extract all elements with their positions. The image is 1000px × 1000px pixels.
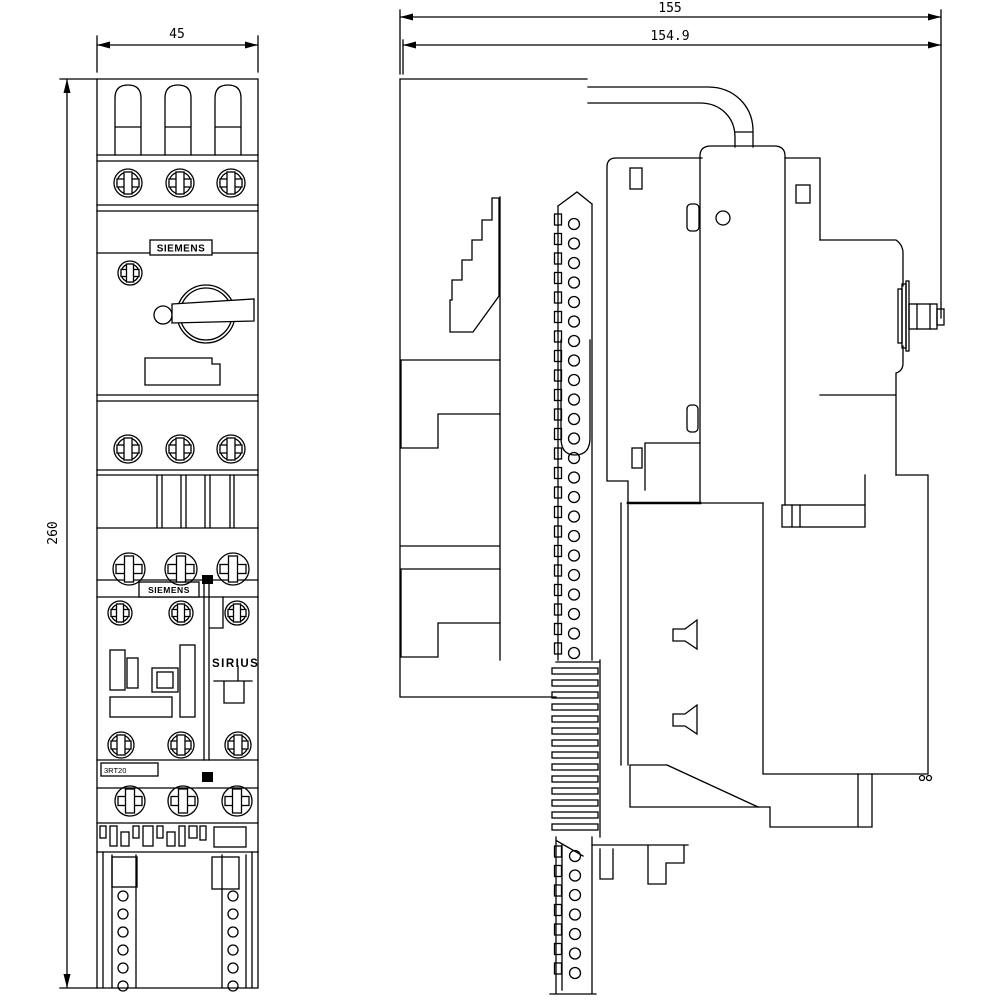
dim-side-depth-device: 154.9	[403, 29, 941, 74]
wiring-duct-tube	[588, 87, 753, 147]
terminal-comb-band	[100, 826, 246, 847]
din-hook-right	[212, 857, 239, 889]
screw-icon	[114, 435, 142, 463]
screw-icon	[225, 601, 249, 625]
siemens-label-contactor: SIEMENS	[148, 585, 190, 595]
dim-side-depth-total: 155	[400, 1, 941, 318]
din-hook-left	[112, 857, 137, 887]
model-label-3rt20: 3RT20	[104, 766, 126, 775]
screw-icon	[108, 732, 134, 758]
screw-icon	[168, 732, 194, 758]
rating-window	[145, 358, 220, 385]
dim-overall-height: 260	[46, 79, 97, 988]
dim-260-value: 260	[46, 521, 61, 544]
dim-154-9-value: 154.9	[650, 29, 689, 44]
screw-icon	[108, 601, 132, 625]
dim-155-value: 155	[658, 1, 681, 16]
comb-fins	[552, 668, 598, 830]
front-view-drawing: SIEMENS SIEMENS SIRIUS	[97, 79, 259, 991]
body-block-breaker	[628, 146, 820, 505]
perforated-strip	[550, 192, 600, 994]
body-block-lower	[621, 475, 932, 827]
drawing-canvas: 45 260 155 154.9 SIEMENS	[0, 0, 1000, 1000]
screw-icon	[225, 732, 251, 758]
din-rail-clip	[592, 845, 688, 884]
link-module-marker	[202, 575, 213, 584]
dim-45-value: 45	[169, 27, 185, 42]
screw-icon	[115, 786, 145, 816]
screw-icon	[217, 169, 245, 197]
side-view-drawing	[400, 79, 944, 994]
screw-icon	[169, 601, 193, 625]
screw-icon	[114, 169, 142, 197]
screw-icon	[166, 435, 194, 463]
body-block-left	[607, 158, 702, 503]
knob-shaft-profile	[820, 240, 944, 475]
link-module-marker-2	[202, 772, 213, 782]
screw-icon	[217, 553, 249, 585]
screw-icon	[222, 786, 252, 816]
dim-front-width: 45	[97, 27, 258, 72]
contactor-internals	[110, 645, 252, 717]
screw-icon	[217, 435, 245, 463]
dimension-drawing: 45 260 155 154.9 SIEMENS	[0, 0, 1000, 1000]
screw-icon	[113, 553, 145, 585]
screw-icon	[168, 786, 198, 816]
sirius-label: SIRIUS	[212, 658, 259, 670]
siemens-label-breaker: SIEMENS	[157, 244, 206, 255]
rotary-knob-icon	[154, 285, 254, 343]
screw-icon	[118, 261, 142, 285]
screw-icon	[166, 169, 194, 197]
screw-icon	[165, 553, 197, 585]
